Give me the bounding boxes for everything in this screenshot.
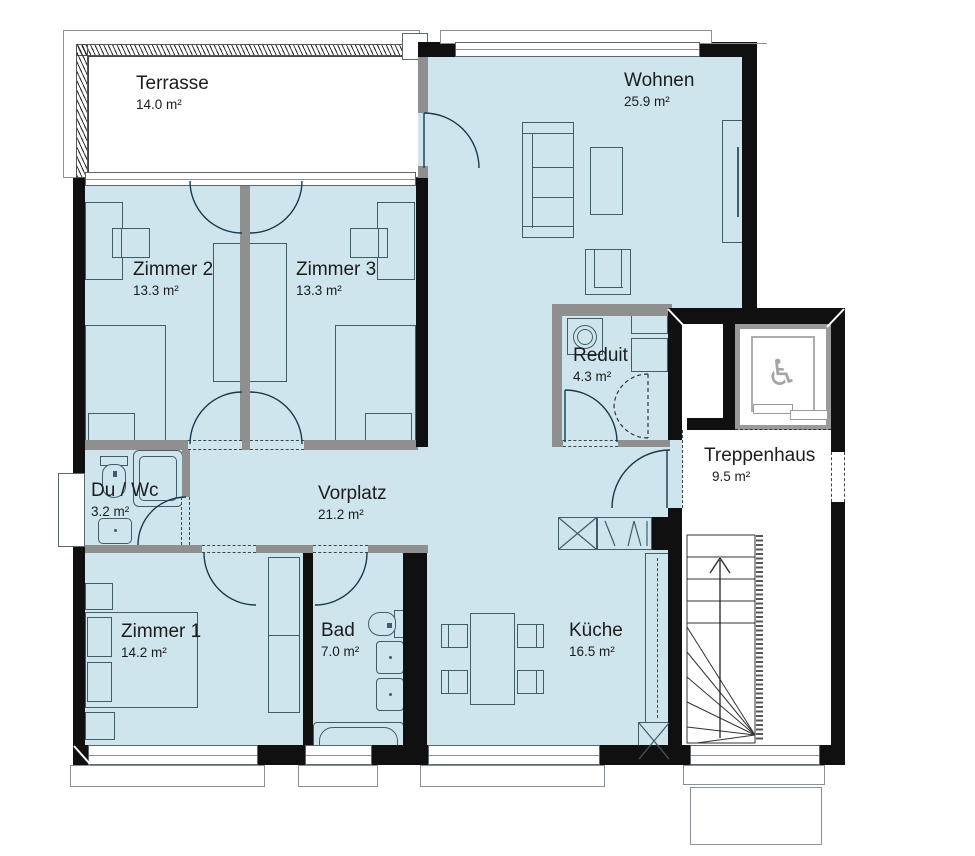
wall-vorplatz-bottom	[85, 545, 428, 553]
window-zimmer23-terrace	[85, 172, 416, 186]
wall-zimmer1-bad	[303, 553, 313, 765]
wall-top-right-seg	[700, 42, 757, 57]
wall-stair-left-lower	[668, 508, 682, 745]
pillow-zimmer3	[365, 413, 412, 441]
wall-bad-kueche	[403, 553, 427, 765]
floor-entry-gap	[668, 440, 682, 508]
room-area: 16.5 m²	[569, 645, 623, 659]
label-zimmer2: Zimmer 2 13.3 m²	[133, 260, 213, 298]
room-name: Reduit	[573, 346, 628, 366]
opening-stairwell-right	[831, 452, 845, 502]
room-area: 4.3 m²	[573, 370, 628, 384]
wall-bottom-4	[600, 745, 690, 765]
wall-stair-right-upper	[831, 324, 845, 452]
entry-stoop	[690, 787, 822, 845]
wall-reduit-top	[552, 304, 672, 316]
wall-wohnen-right	[742, 57, 757, 310]
wheelchair-icon: ♿	[766, 352, 798, 394]
pillow-zimmer1-a	[87, 617, 112, 657]
room-area: 9.5 m²	[712, 470, 815, 484]
sill-bottom-3	[420, 765, 605, 787]
room-name: Zimmer 3	[296, 260, 376, 280]
dining-table	[470, 613, 515, 705]
label-reduit: Reduit 4.3 m²	[573, 346, 628, 384]
wall-left-upper	[73, 178, 85, 473]
wall-closet-end	[652, 517, 670, 550]
floor-plan: ♿	[0, 0, 975, 856]
room-name: Wohnen	[624, 71, 694, 91]
window-stairwell	[690, 745, 820, 765]
elevator-landing-dashed	[735, 429, 831, 432]
room-name: Du / Wc	[91, 481, 159, 501]
wall-bottom-5	[820, 745, 845, 765]
wall-left-lower	[73, 547, 85, 765]
nightstand-zimmer1-bottom	[85, 712, 115, 740]
wall-zimmer3-wohnen	[416, 178, 428, 447]
wardrobe-zimmer1	[268, 557, 300, 713]
room-area: 25.9 m²	[624, 95, 694, 109]
room-area: 14.2 m²	[121, 646, 201, 660]
opening-zimmer3-door	[250, 440, 304, 450]
room-area: 13.3 m²	[296, 284, 376, 298]
dining-chair-2	[441, 670, 468, 694]
room-name: Zimmer 1	[121, 622, 201, 642]
sofa	[522, 122, 574, 238]
kitchen-counter	[645, 553, 670, 723]
room-area: 21.2 m²	[318, 508, 387, 522]
wall-stair-right-lower	[831, 502, 845, 765]
label-duwc: Du / Wc 3.2 m²	[91, 481, 159, 519]
opening-bad-door	[313, 545, 368, 553]
label-wohnen: Wohnen 25.9 m²	[624, 71, 694, 109]
chair-zimmer2	[112, 228, 150, 258]
wall-stair-left-upper	[668, 324, 682, 440]
label-terrasse: Terrasse 14.0 m²	[136, 74, 209, 112]
room-name: Küche	[569, 621, 623, 641]
label-zimmer3: Zimmer 3 13.3 m²	[296, 260, 376, 298]
dining-chair-3	[517, 624, 544, 648]
sink-duwc	[98, 518, 132, 544]
coffee-table	[590, 147, 623, 215]
room-area: 13.3 m²	[133, 284, 213, 298]
room-name: Zimmer 2	[133, 260, 213, 280]
wall-zimmer23-partition	[240, 184, 250, 442]
wall-bottom-3	[372, 745, 428, 765]
wall-top-left-seg	[418, 42, 457, 57]
wall-bottom-1	[73, 745, 88, 765]
window-duwc-left	[58, 473, 85, 547]
armchair	[585, 249, 631, 295]
dining-chair-4	[517, 670, 544, 694]
sink-bad-b	[376, 678, 404, 711]
opening-reduit-door	[563, 440, 618, 447]
room-area: 14.0 m²	[136, 98, 209, 112]
wall-bottom-2	[258, 745, 305, 765]
sill-bottom-stairs	[683, 765, 825, 785]
opening-duwc-door	[181, 497, 190, 545]
label-zimmer1: Zimmer 1 14.2 m²	[121, 622, 201, 660]
toilet-bad-bowl	[368, 612, 396, 636]
room-name: Terrasse	[136, 74, 209, 94]
cabinet-reduit	[631, 338, 668, 372]
wall-terrace-wohnen-b	[418, 166, 428, 178]
label-vorplatz: Vorplatz 21.2 m²	[318, 484, 387, 522]
sill-bottom-2	[298, 765, 378, 787]
wall-reduit-left	[552, 304, 562, 447]
window-kueche	[428, 745, 600, 765]
room-name: Treppenhaus	[704, 446, 815, 466]
label-treppenhaus: Treppenhaus 9.5 m²	[704, 446, 815, 484]
opening-entry-landing	[682, 430, 684, 508]
elevator-door-panel-a	[753, 404, 793, 414]
terrace-wall-left	[76, 44, 88, 178]
elevator-door-panel-b	[790, 410, 828, 420]
opening-zimmer1-door	[202, 545, 256, 553]
dining-chair-1	[441, 624, 468, 648]
wall-elevator-left	[723, 324, 735, 430]
wall-niche-bottom	[687, 418, 731, 430]
window-bad	[305, 745, 372, 765]
room-name: Bad	[321, 621, 359, 641]
window-zimmer1	[88, 745, 258, 765]
sink-bad-a	[376, 641, 404, 674]
opening-zimmer2-door	[188, 440, 242, 450]
wardrobe-zimmer3	[248, 243, 287, 382]
kitchen-appliance-box	[558, 517, 597, 550]
window-wohnen-top	[455, 42, 700, 57]
outline-top-right	[712, 43, 767, 44]
room-name: Vorplatz	[318, 484, 387, 504]
room-area: 3.2 m²	[91, 505, 159, 519]
sill-bottom-1	[70, 765, 265, 787]
nightstand-zimmer1-top	[85, 583, 113, 610]
label-kueche: Küche 16.5 m²	[569, 621, 623, 659]
pillow-zimmer2	[88, 413, 135, 441]
room-area: 7.0 m²	[321, 645, 359, 659]
wall-terrace-wohnen-a	[418, 57, 428, 113]
chair-zimmer3	[350, 228, 388, 258]
pillow-zimmer1-b	[87, 662, 112, 702]
entry-closet	[597, 517, 652, 550]
terrace-wall-top	[76, 44, 420, 56]
label-bad: Bad 7.0 m²	[321, 621, 359, 659]
wall-stair-top	[668, 308, 845, 324]
